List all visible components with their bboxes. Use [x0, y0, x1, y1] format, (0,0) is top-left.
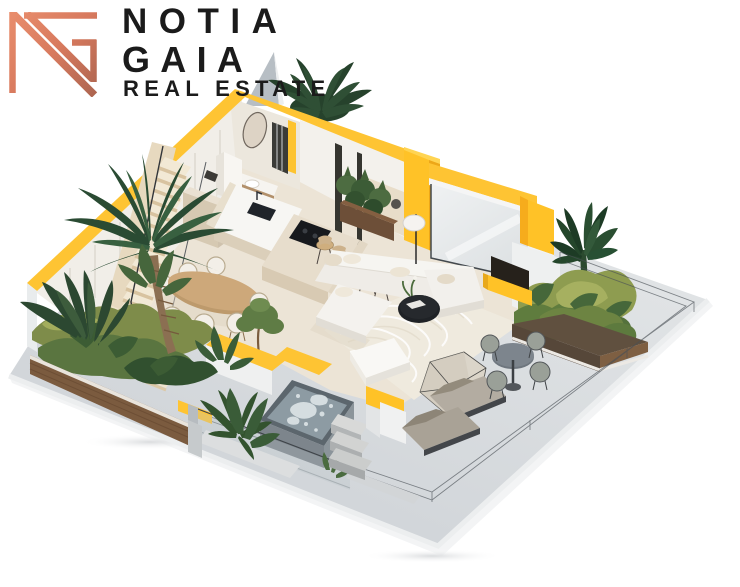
svg-text:GAIA: GAIA — [122, 39, 253, 80]
svg-text:NOTIA: NOTIA — [122, 2, 288, 41]
svg-text:REAL ESTATE: REAL ESTATE — [123, 76, 330, 101]
